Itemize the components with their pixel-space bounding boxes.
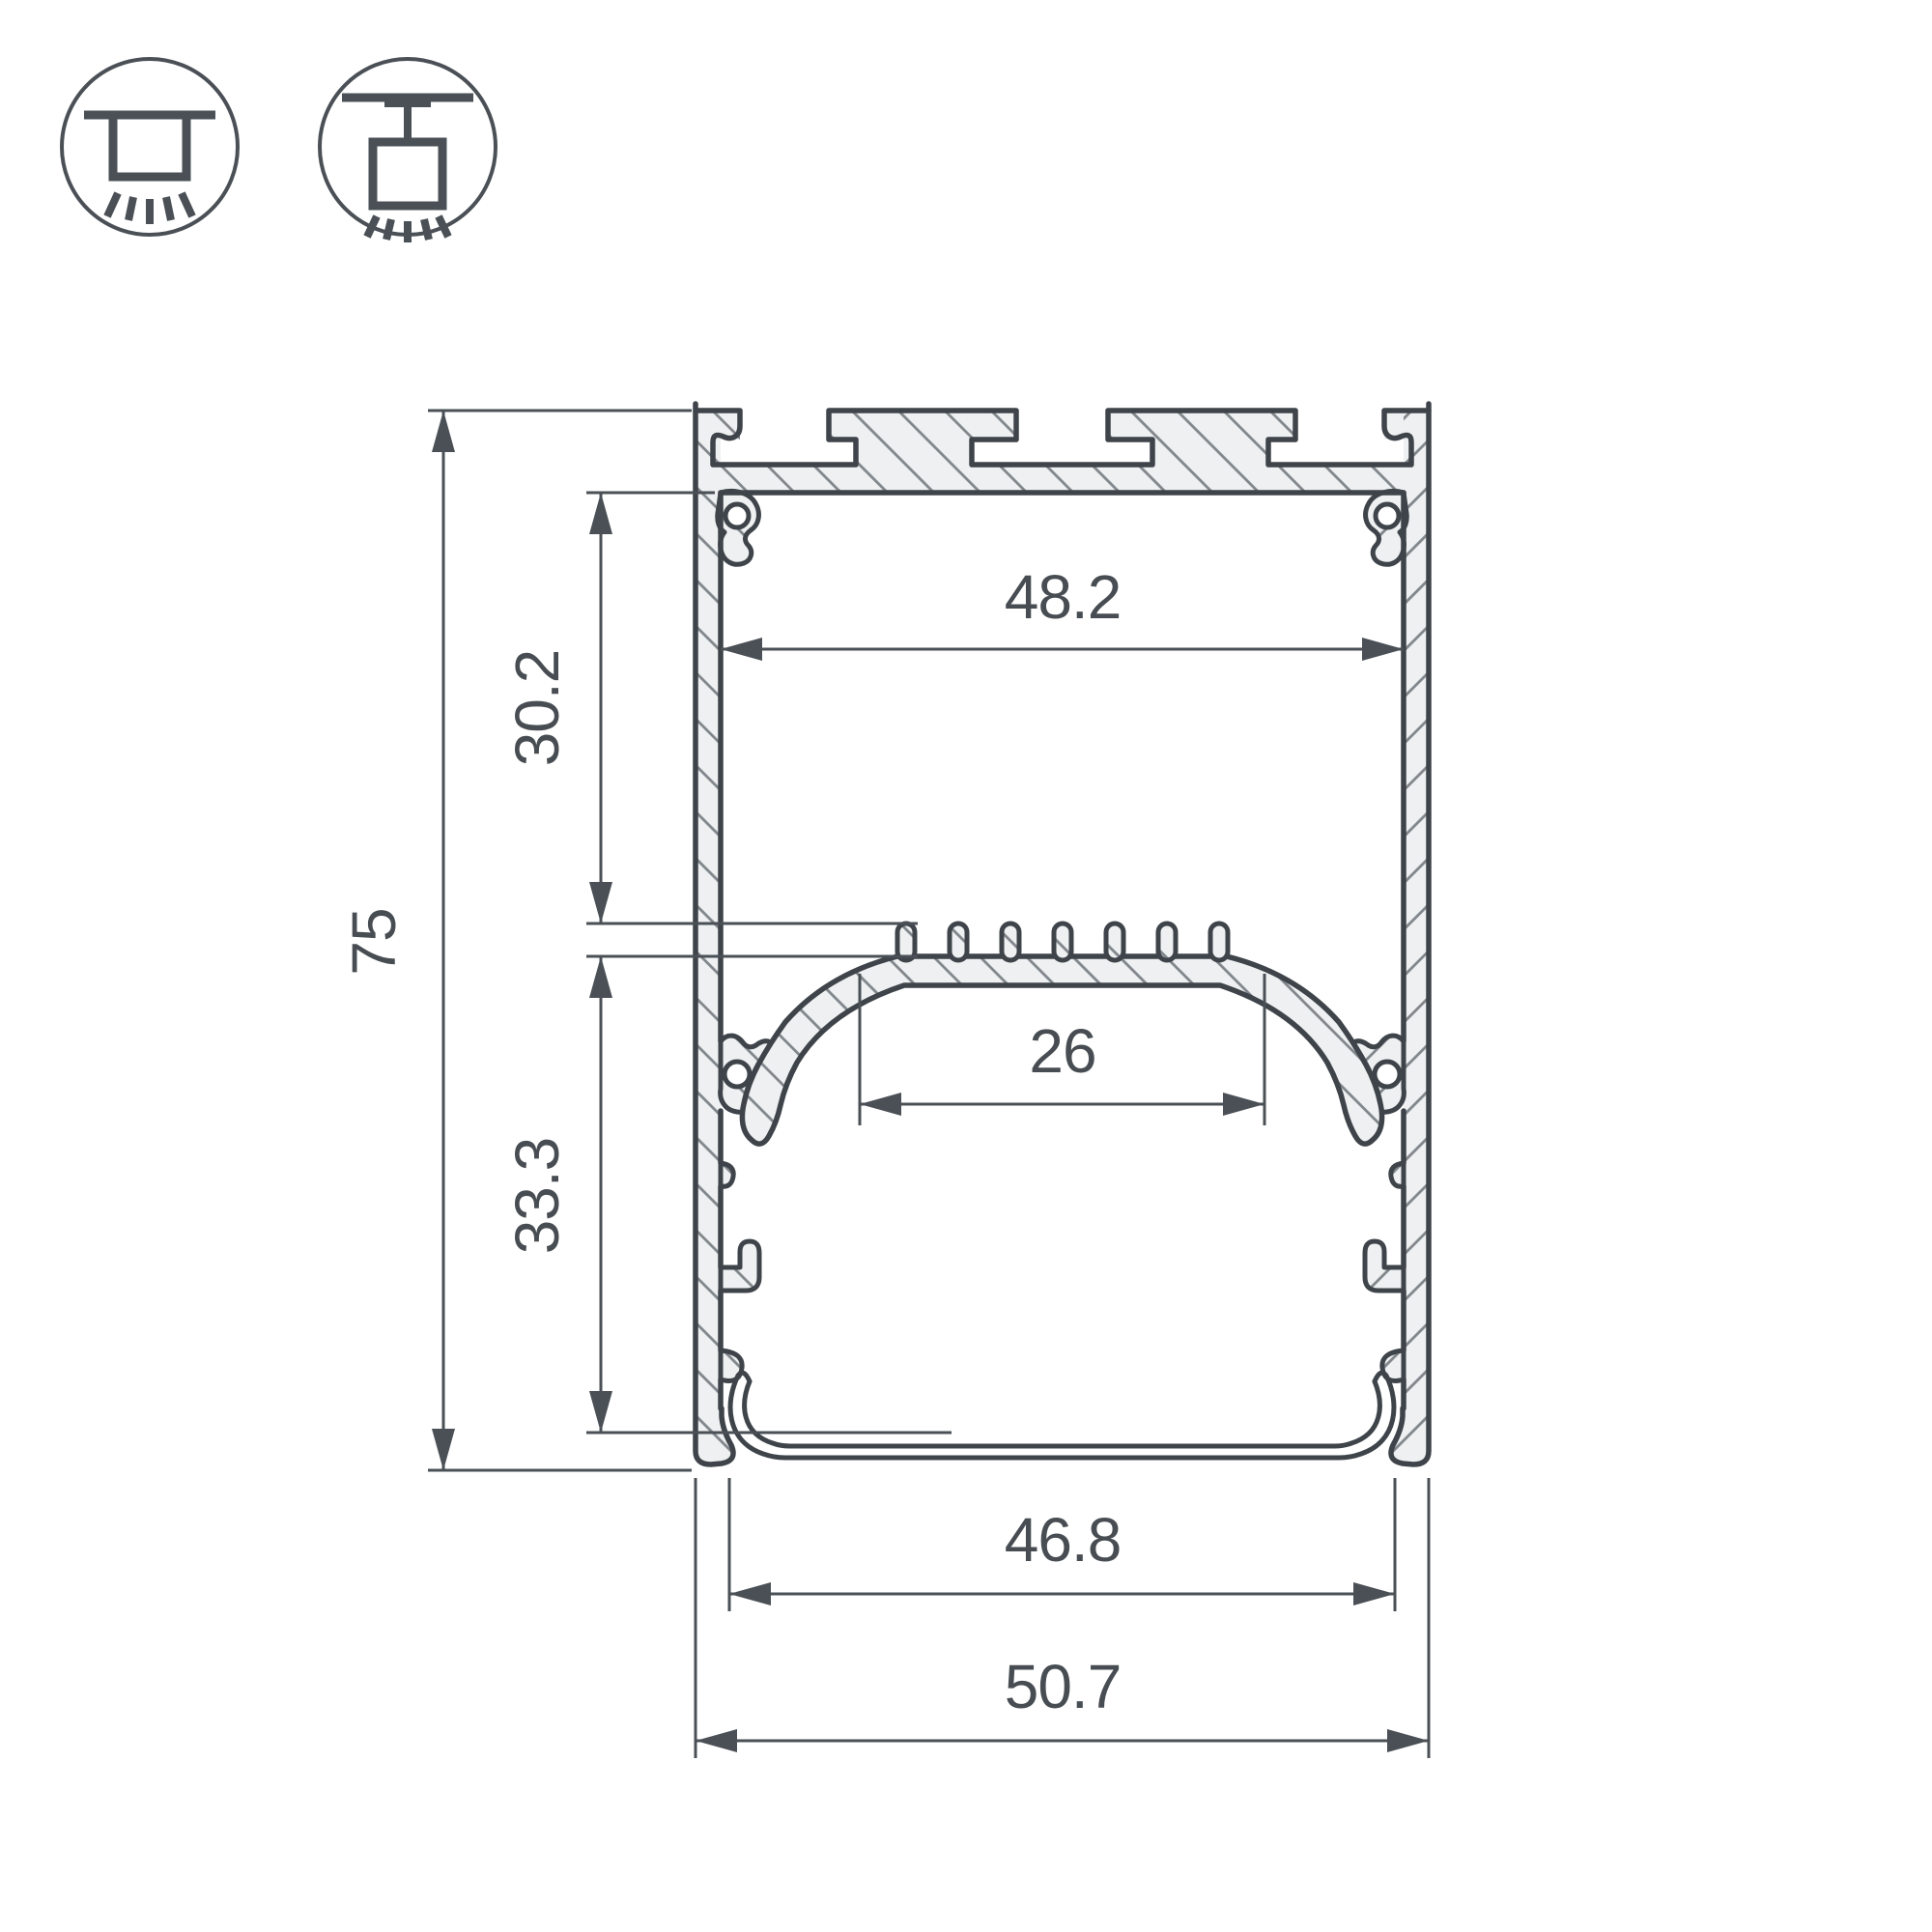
dim-label-46-8: 46.8: [1005, 1505, 1122, 1575]
profile-drawing-canvas: 75 30.2 33.3 48.2 26 46.8: [0, 0, 1932, 1932]
dimension-inner-top-width: 48.2: [721, 562, 1404, 661]
dim-label-33-3: 33.3: [502, 1138, 572, 1255]
dimension-overall-height: 75: [339, 411, 692, 1470]
surface-mount-icon: [62, 59, 238, 235]
dim-label-50-7: 50.7: [1005, 1652, 1122, 1721]
dim-label-75: 75: [339, 908, 409, 975]
drawing-page: 75 30.2 33.3 48.2 26 46.8: [0, 0, 1932, 1932]
dimension-inner-bottom-width: 46.8: [729, 1478, 1395, 1611]
dimension-platform-width: 26: [860, 974, 1264, 1125]
dim-label-30-2: 30.2: [502, 650, 572, 767]
dim-label-48-2: 48.2: [1005, 562, 1122, 632]
dim-label-26: 26: [1029, 1016, 1095, 1086]
profile-right-wall: [1349, 404, 1429, 1464]
profile-left-wall: [696, 404, 776, 1464]
pendant-mount-icon: [320, 59, 496, 242]
diffuser-tray: [730, 1373, 1394, 1458]
